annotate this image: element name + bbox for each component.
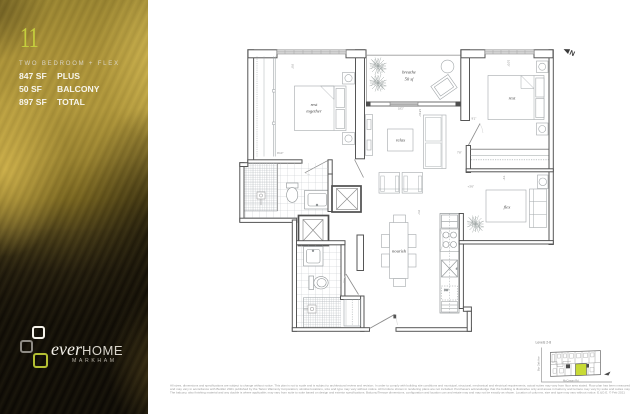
svg-text:DW: DW — [444, 288, 449, 292]
svg-text:+3'6": +3'6" — [468, 185, 474, 189]
svg-text:7'2": 7'2" — [502, 176, 506, 181]
svg-text:breathe: breathe — [402, 70, 416, 75]
svg-text:relax: relax — [396, 138, 405, 143]
svg-text:rest: rest — [509, 96, 516, 101]
svg-text:nourish: nourish — [392, 249, 407, 254]
svg-text:and may vary in accordance wit: and may vary in accordance with Builder … — [170, 387, 631, 391]
svg-text:7'8": 7'8" — [457, 151, 462, 155]
svg-text:9'1": 9'1" — [472, 117, 477, 121]
svg-text:McCowan Rd: McCowan Rd — [563, 379, 579, 383]
svg-text:9'1": 9'1" — [417, 210, 421, 215]
svg-text:Levels 2-8: Levels 2-8 — [536, 341, 552, 345]
svg-text:50 sf: 50 sf — [405, 77, 415, 82]
svg-text:together: together — [306, 109, 322, 114]
svg-text:9'10": 9'10" — [277, 151, 283, 155]
svg-text:rest: rest — [311, 102, 318, 107]
svg-text:The balcony, also finishing ma: The balcony, also finishing material and… — [170, 390, 626, 394]
svg-text:9'0": 9'0" — [291, 64, 295, 69]
svg-text:flex: flex — [504, 205, 511, 210]
svg-text:18'11": 18'11" — [418, 109, 422, 117]
svg-text:10'0": 10'0" — [507, 60, 511, 66]
svg-text:18'2": 18'2" — [398, 107, 404, 111]
svg-text:All sizes, dimensions and spec: All sizes, dimensions and specifications… — [170, 383, 631, 387]
svg-text:Bur Oak Ave: Bur Oak Ave — [537, 356, 541, 371]
